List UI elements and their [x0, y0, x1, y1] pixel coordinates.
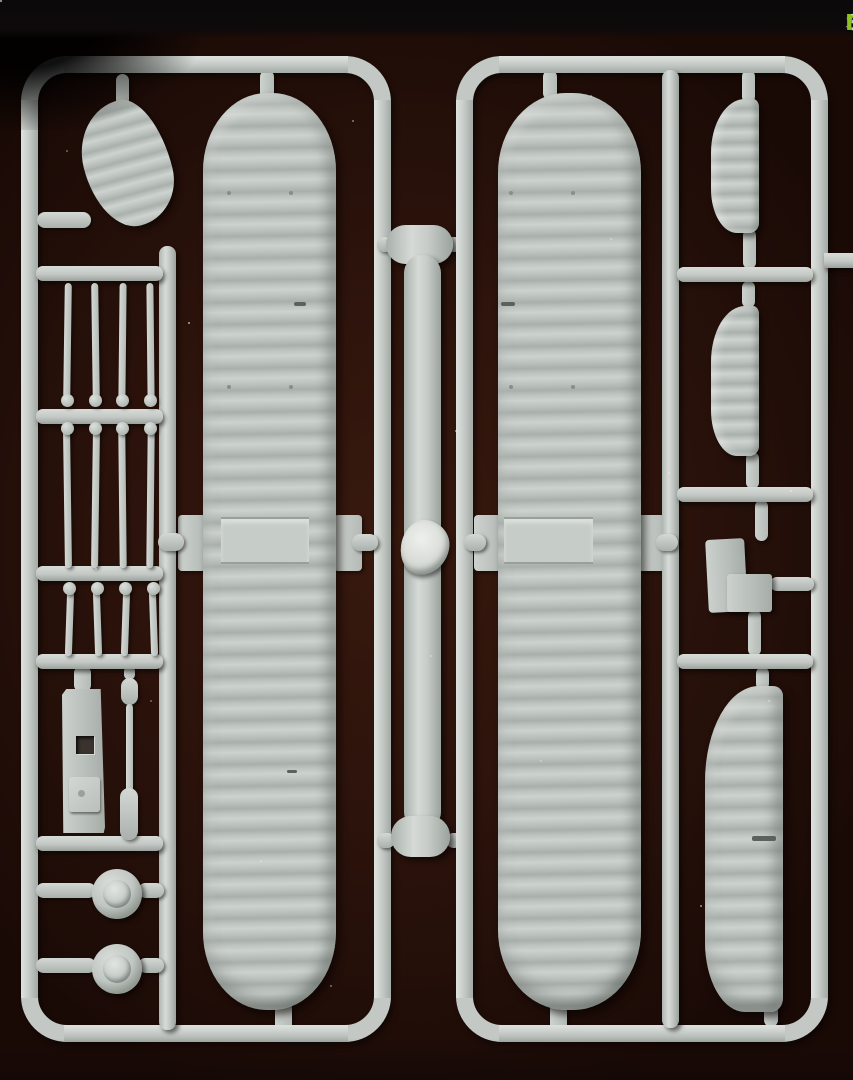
watermark-text-mates: mates [845, 2, 853, 38]
block-top-gate [74, 666, 91, 692]
tailplane1-bottom-gate [743, 229, 756, 269]
wing-slot-mark [294, 302, 306, 306]
fairing-side-pin [37, 212, 91, 228]
wing-mark [289, 191, 293, 195]
wing-slot-mark [501, 302, 515, 306]
scan-top-edge [0, 0, 853, 38]
wing-mark [509, 191, 513, 195]
ladder-crossbar-5 [36, 836, 163, 851]
dumbbell-shaft [126, 704, 133, 792]
runner-stub-off-image [824, 253, 853, 268]
pad-dot [78, 790, 85, 797]
wheel2-left-stub [36, 958, 96, 973]
strut-row2-3 [118, 430, 126, 568]
wing-mark [571, 191, 575, 195]
strut-row1-3 [118, 283, 126, 401]
sprue-scan-photo: scalemates [0, 0, 853, 1080]
right-wing-left-pin [464, 534, 486, 551]
wheel-part-1 [92, 869, 142, 919]
left-wing-left-pin [158, 533, 184, 551]
left-frame-left-rail [21, 100, 38, 998]
ladder-crossbar-4 [36, 654, 163, 669]
wing-mark [227, 385, 231, 389]
wheel-hub [103, 880, 131, 908]
strut-ball [89, 422, 102, 435]
right-crossbar-3 [677, 654, 813, 669]
wing-mark [227, 191, 231, 195]
stabiliser-slot-mark [752, 836, 776, 841]
strut-ball [61, 394, 74, 407]
stepped-fin-part-lower [727, 574, 772, 612]
strut-ball [116, 394, 129, 407]
strut-ball [144, 422, 157, 435]
right-frame-right-rail [811, 100, 828, 998]
wing-mark [289, 385, 293, 389]
wheel-part-2 [92, 944, 142, 994]
left-wing-right-pin [352, 534, 378, 551]
strut-ball [147, 582, 160, 595]
scan-bottom-edge [0, 1038, 853, 1080]
tailplane2-top-gate [742, 281, 755, 308]
strut-ball [61, 422, 74, 435]
strut-ball [119, 582, 132, 595]
dumbbell-lower-bulge [120, 788, 138, 840]
strut-ball [89, 394, 102, 407]
wing-slot-mark [287, 770, 297, 773]
dumbbell-top-bulge [121, 678, 138, 705]
tailplane-half-part-2 [711, 306, 759, 456]
right-frame-top-rail [499, 56, 785, 73]
tailplane2-bottom-gate [746, 452, 759, 489]
dust-specks [0, 0, 2, 2]
stabiliser-half-part [705, 686, 783, 1012]
right-wing-right-pin [656, 534, 678, 551]
strut-row1-4 [146, 283, 154, 401]
strut-ball [116, 422, 129, 435]
strut-row2-4 [146, 430, 154, 568]
fin-side-stub [770, 577, 814, 591]
wing-mark [571, 385, 575, 389]
left-wing-centre-section [221, 517, 309, 564]
ladder-inner-rail [159, 246, 176, 1030]
ladder-crossbar-3 [36, 566, 163, 581]
right-crossbar-1 [677, 267, 813, 282]
block-square-opening [76, 736, 94, 754]
strut-ball [91, 582, 104, 595]
strut-ball [63, 582, 76, 595]
wheel1-left-stub [36, 883, 96, 898]
right-crossbar-2 [677, 487, 813, 502]
ladder-crossbar-1 [36, 266, 163, 281]
fin-top-gate [755, 500, 768, 541]
wheel-hub [103, 955, 131, 983]
fin-bottom-gate [748, 610, 761, 656]
right-wing-centre-section [504, 517, 593, 564]
strut-ball [144, 394, 157, 407]
wing-mark [509, 385, 513, 389]
float-rod-bottom-cap [391, 816, 450, 857]
tailplane-half-part-1 [711, 99, 759, 233]
ladder-crossbar-2 [36, 409, 163, 424]
